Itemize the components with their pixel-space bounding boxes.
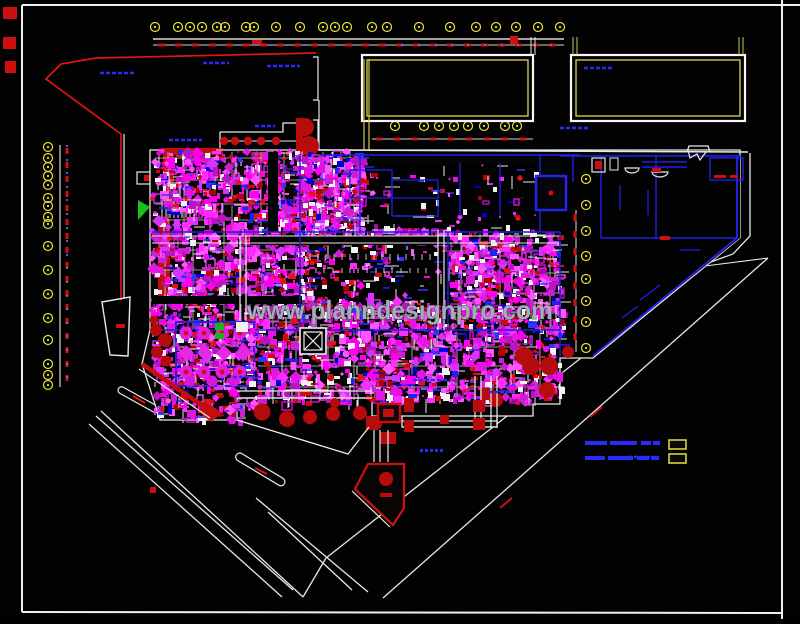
svg-text:www.planndesignpro.com: www.planndesignpro.com (246, 295, 553, 325)
